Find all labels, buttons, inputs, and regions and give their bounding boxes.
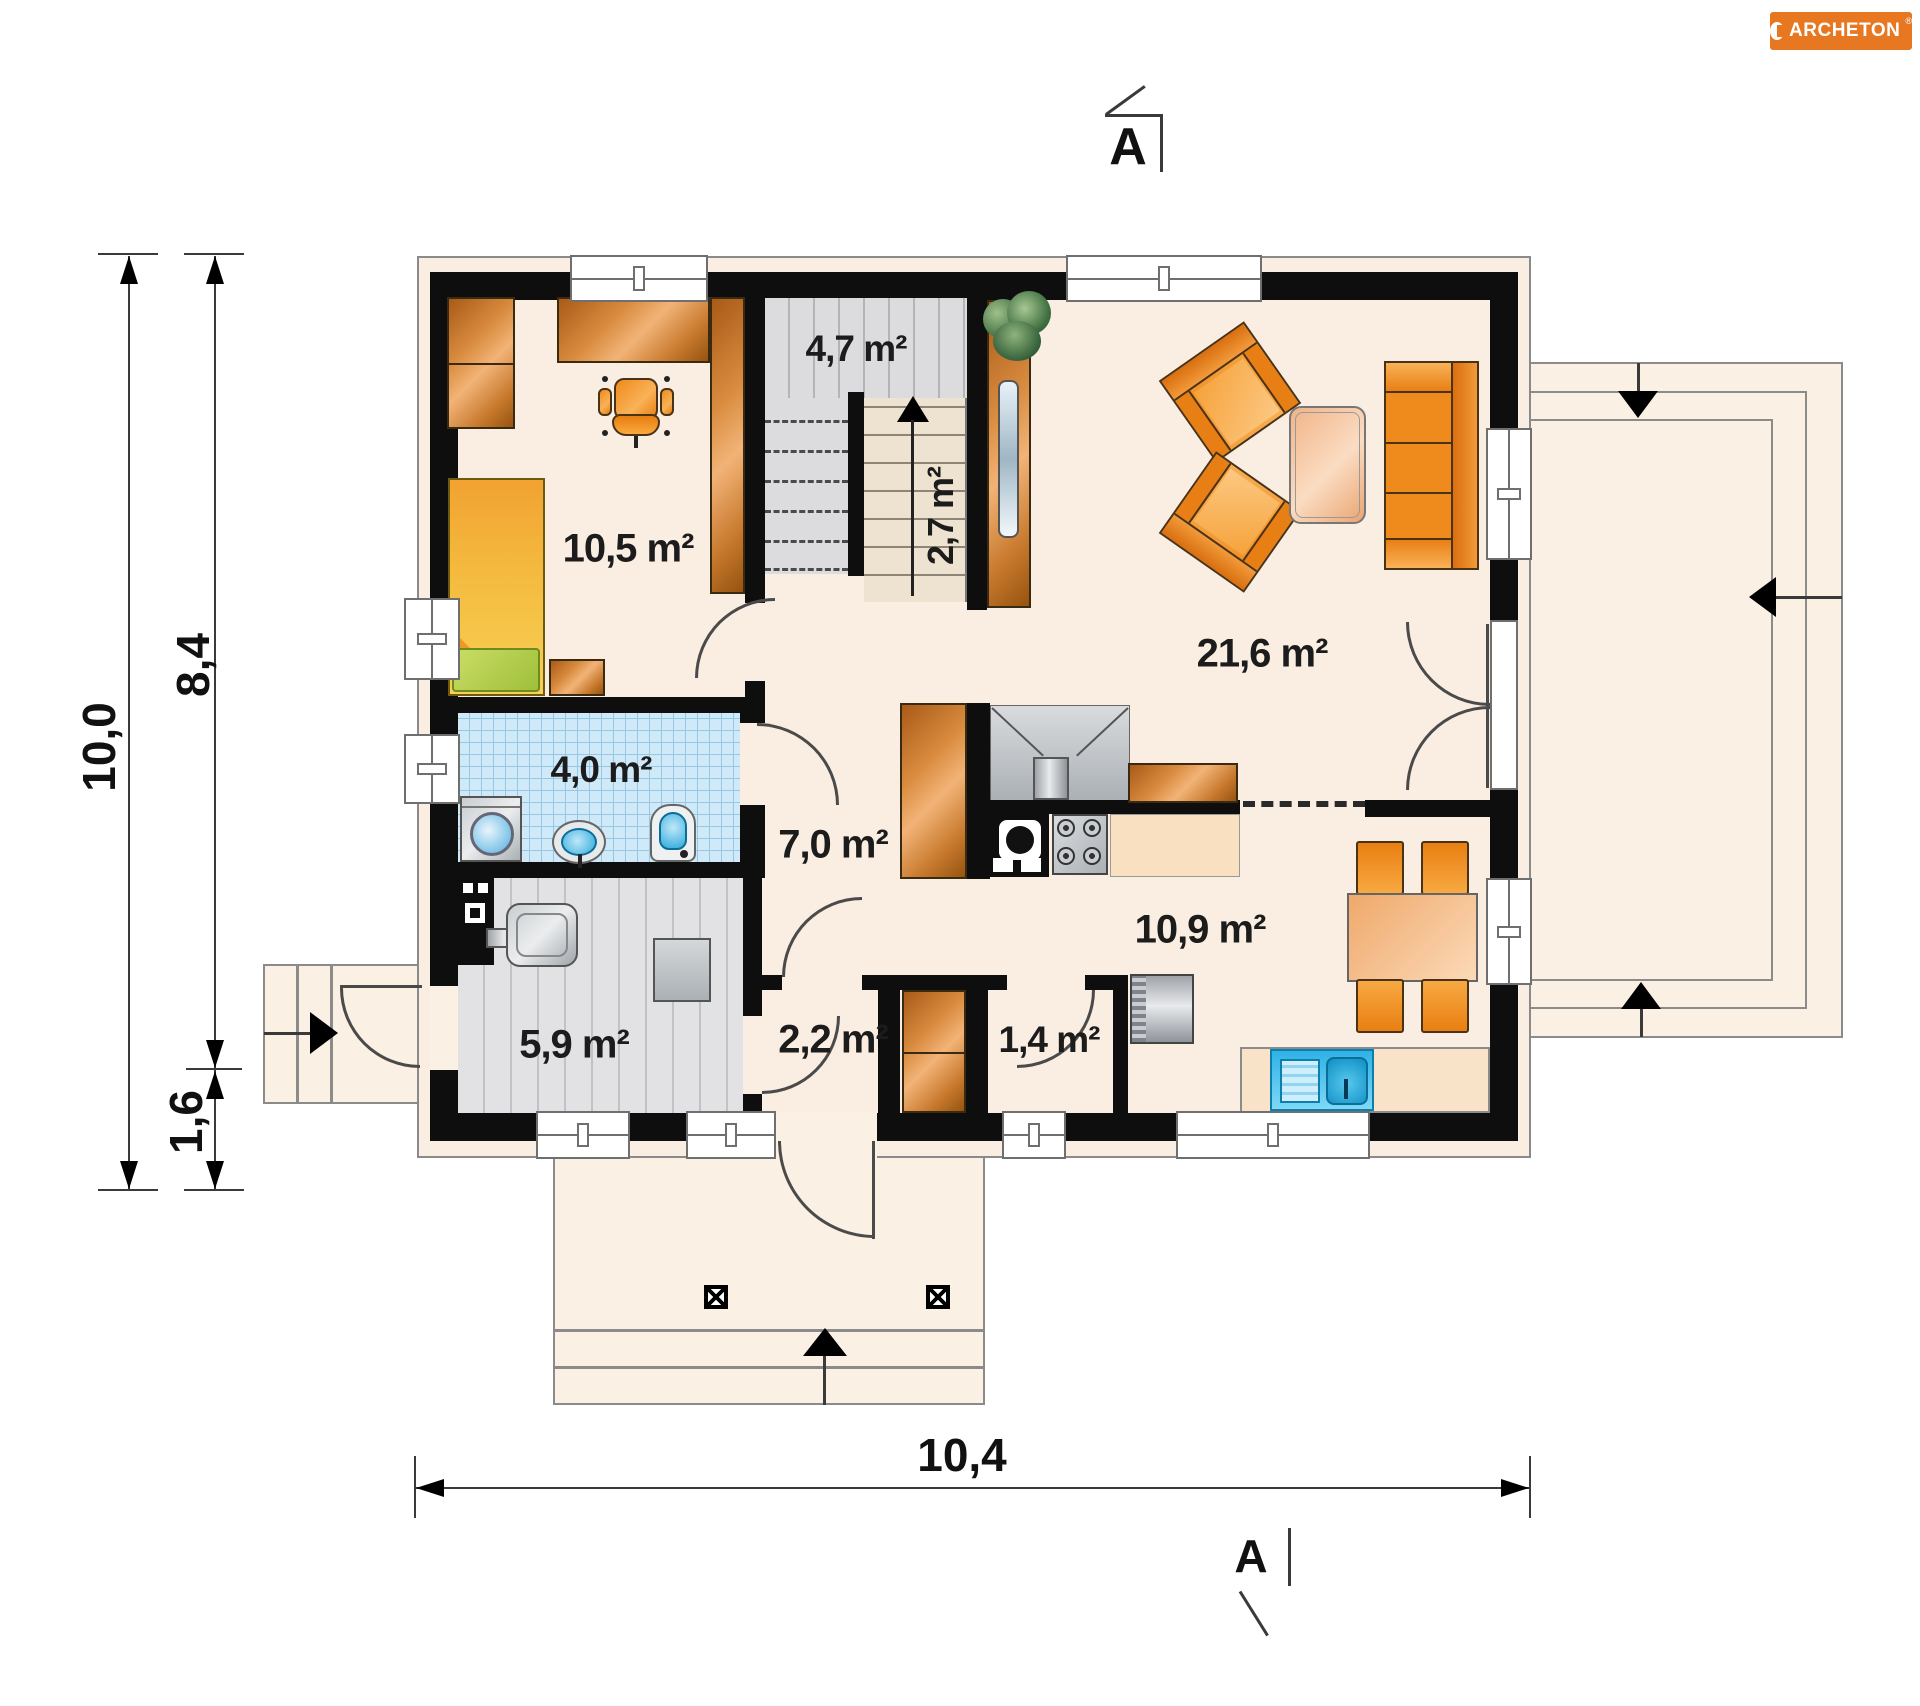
dim-arrow-up xyxy=(206,256,224,284)
dim-tick xyxy=(98,253,158,255)
front-porch-step-line-1 xyxy=(553,1329,985,1332)
room-label-kitchen: 10,9 m² xyxy=(1135,908,1266,953)
room-label-bathroom: 4,0 m² xyxy=(551,749,652,791)
archeton-logo: ARCHETON ® xyxy=(1770,12,1912,50)
window-dining-right xyxy=(1486,878,1532,985)
terrace-arrow-top xyxy=(1618,391,1658,418)
island-drawer-2 xyxy=(1021,858,1041,872)
terrace-arrow-right-stem xyxy=(1776,596,1842,599)
dim-line-left-outer xyxy=(128,256,130,1190)
opening-boiler-side xyxy=(430,986,458,1070)
room-label-wc: 2,2 m² xyxy=(778,1018,888,1063)
chimney-block xyxy=(458,877,494,965)
window-hall-bottom xyxy=(1002,1111,1066,1159)
island-drawer-1 xyxy=(993,858,1013,872)
dining-chair xyxy=(1356,841,1404,895)
front-porch-step-line-2 xyxy=(553,1366,985,1369)
section-marker-bottom-vline xyxy=(1288,1528,1291,1586)
water-heater-icon xyxy=(1130,974,1194,1044)
window-living-right xyxy=(1486,428,1532,560)
side-entry-arrow-stem xyxy=(264,1032,312,1035)
dim-tick xyxy=(98,1189,158,1191)
wall-boiler-right-upper xyxy=(743,877,762,1016)
dining-chair xyxy=(1356,979,1404,1033)
dim-label-house-depth: 8,4 xyxy=(166,633,220,697)
wall-bathroom-right-lower xyxy=(740,805,765,865)
wall-bedroom-right xyxy=(745,300,765,603)
section-marker-bottom-diagonal xyxy=(1239,1591,1269,1637)
stairs-arrow-stem xyxy=(911,420,914,596)
stairs-dashed-flight xyxy=(765,398,848,574)
dim-line-bottom xyxy=(415,1487,1530,1489)
kitchen-sink-icon xyxy=(1270,1049,1374,1111)
wall-bathroom-right-upper xyxy=(740,708,765,723)
sofa xyxy=(1384,361,1479,570)
wall-pantry-right xyxy=(1113,975,1128,1113)
opening-boiler-wc xyxy=(743,1016,762,1094)
room-label-hall: 7,0 m² xyxy=(778,823,888,868)
washing-machine-icon xyxy=(460,796,522,862)
terrace-arrow-bottom xyxy=(1621,982,1661,1009)
dim-arrow-down xyxy=(206,1040,224,1068)
terrace-step-inner xyxy=(1518,419,1773,981)
floor-plan-canvas: 10,5 m² 4,7 m² 2,7 m² 21,6 m² 4,0 m² 7,0… xyxy=(0,0,1920,1706)
porch-column-icon xyxy=(926,1285,950,1309)
dim-arrow-down xyxy=(120,1161,138,1189)
tall-unit-glass xyxy=(998,380,1019,538)
window-bedroom-top xyxy=(570,255,708,302)
wall-wc-top-band xyxy=(862,975,1007,990)
coffee-table xyxy=(1289,406,1366,524)
dining-chair xyxy=(1421,841,1469,895)
stairs-divider-wall xyxy=(848,392,864,576)
dim-tick xyxy=(184,1189,244,1191)
dim-arrow-right xyxy=(1501,1479,1529,1497)
side-entry-arrow xyxy=(310,1012,338,1054)
wall-bathroom-top xyxy=(430,697,765,713)
room-label-bedroom: 10,5 m² xyxy=(563,527,694,572)
window-boiler-bottom xyxy=(536,1111,630,1159)
entry-closet xyxy=(902,990,966,1113)
counter-dashed-line xyxy=(1243,801,1365,807)
wall-bathroom-bottom xyxy=(430,862,765,878)
dim-label-total-width: 10,4 xyxy=(917,1428,1007,1482)
room-label-living-room: 21,6 m² xyxy=(1197,632,1328,677)
bed-pillow xyxy=(452,648,540,692)
wall-closet-right xyxy=(965,990,988,1113)
stove-icon xyxy=(1052,814,1108,875)
island-cabinet xyxy=(900,703,967,879)
dim-arrow-up xyxy=(120,256,138,284)
desk xyxy=(557,297,710,363)
window-living-top xyxy=(1066,255,1262,302)
dim-arrow-down xyxy=(206,1161,224,1189)
porch-column-icon xyxy=(704,1285,728,1309)
stairs-up-arrow xyxy=(897,396,929,422)
furnace-icon xyxy=(506,903,578,967)
terrace-arrow-bottom-stem xyxy=(1640,1009,1643,1037)
dim-tick xyxy=(184,253,244,255)
window-kitchen-bottom xyxy=(1176,1111,1370,1159)
archeton-logo-text: ARCHETON xyxy=(1789,20,1900,42)
wall-living-dining-divider xyxy=(1365,800,1490,817)
room-label-boiler-room: 5,9 m² xyxy=(519,1023,629,1068)
dim-tick xyxy=(1529,1456,1531,1518)
opening-terrace-door xyxy=(1490,620,1518,790)
registered-mark: ® xyxy=(1905,16,1912,26)
section-marker-top-diagonal xyxy=(1105,85,1146,116)
terrace-arrow-top-stem xyxy=(1637,363,1640,391)
room-label-staircase-upper: 4,7 m² xyxy=(806,328,907,370)
hood-duct xyxy=(1033,757,1069,800)
desk-chair-icon xyxy=(598,372,674,448)
section-marker-top-vline xyxy=(1160,114,1163,172)
window-bathroom-left xyxy=(404,734,460,804)
wall-wc-top-stub xyxy=(762,975,782,990)
bookshelf xyxy=(710,297,745,594)
dim-label-porch-depth: 1,6 xyxy=(159,1090,213,1154)
toilet-icon xyxy=(650,804,696,862)
island-wall xyxy=(967,703,990,879)
dining-table xyxy=(1347,893,1478,982)
kitchen-counter-beige xyxy=(1110,814,1240,877)
front-entry-arrow xyxy=(803,1328,847,1356)
dim-label-total-depth: 10,0 xyxy=(72,702,126,792)
island-sink-bowl-icon xyxy=(1006,826,1034,854)
window-wc-bottom xyxy=(686,1111,776,1159)
nightstand xyxy=(549,659,605,696)
plant-icon xyxy=(981,291,1051,363)
archeton-logo-icon xyxy=(1770,22,1784,40)
boiler-bench xyxy=(653,938,711,1002)
wardrobe xyxy=(447,297,515,429)
section-label-top: A xyxy=(1109,117,1147,177)
room-label-pantry: 1,4 m² xyxy=(999,1019,1100,1061)
section-label-bottom: A xyxy=(1234,1529,1267,1583)
dim-arrow-left xyxy=(416,1479,444,1497)
dim-tick xyxy=(186,1068,242,1070)
room-label-staircase-lower: 2,7 m² xyxy=(920,467,962,565)
dining-chair xyxy=(1421,979,1469,1033)
window-bedroom-left xyxy=(404,598,460,680)
kitchen-counter-orange xyxy=(1128,763,1238,803)
front-entry-arrow-stem xyxy=(823,1356,826,1405)
bathroom-sink-icon xyxy=(552,820,606,864)
terrace-arrow-right xyxy=(1749,577,1776,617)
